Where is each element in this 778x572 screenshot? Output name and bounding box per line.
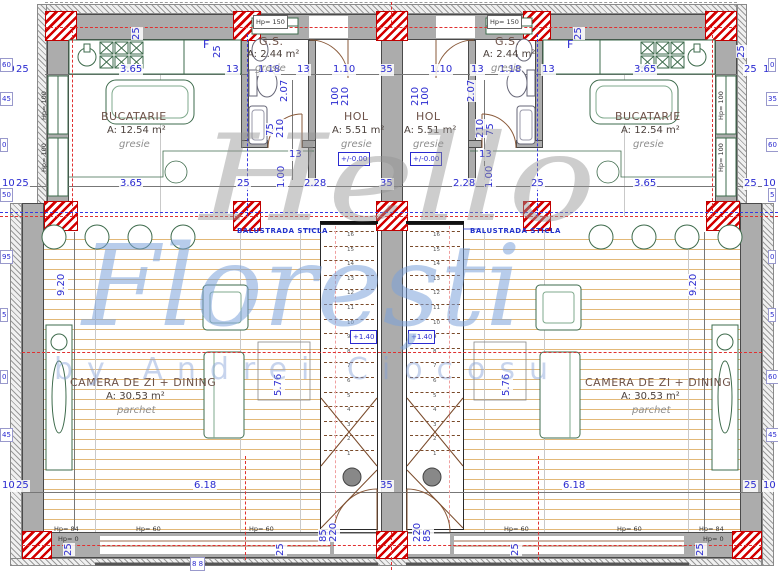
level-badge: +1.40: [350, 330, 377, 344]
dimension-label: 6.18: [193, 480, 217, 492]
axis-red: [22, 352, 762, 353]
level-badge: +1.40: [408, 330, 435, 344]
dimension-label-vertical: 210: [340, 87, 352, 106]
dimension-label-vertical: 25: [212, 45, 224, 58]
dimension-label: 1.10: [332, 64, 356, 76]
dimension-label-vertical: 25: [63, 543, 75, 556]
sill-height-label-vertical: Hp= 100: [715, 91, 727, 120]
sill-height-label: Hp= 0: [58, 533, 79, 545]
edge-dimension-fragment: 95: [0, 250, 13, 264]
dimension-label-vertical: 100: [420, 87, 432, 106]
edge-dimension-fragment: 60: [0, 58, 13, 72]
edge-dimension-fragment: 45: [0, 92, 13, 106]
dimension-label: 25: [15, 178, 30, 190]
room-title: HOL: [344, 111, 369, 123]
edge-dimension-fragment: 8 8: [190, 557, 205, 571]
dimension-label: 3.65: [633, 64, 657, 76]
axis-red: [391, 532, 392, 570]
dimension-label-vertical: 210: [275, 119, 287, 138]
edge-dimension-fragment: 60: [766, 370, 778, 384]
room-floor-finish: gresie: [491, 63, 522, 75]
axis-red: [538, 456, 539, 560]
dimension-label-vertical: 9.20: [688, 274, 700, 296]
dimension-label: 3.65: [633, 178, 657, 190]
dimension-label-vertical: 9.20: [56, 274, 68, 296]
edge-dimension-fragment: 0: [0, 370, 8, 384]
edge-dimension-fragment: 5: [768, 308, 776, 322]
dimension-label-vertical: 85: [422, 529, 434, 542]
dimension-label: 10: [762, 480, 777, 492]
room-floor-finish: gresie: [119, 139, 150, 151]
dimension-label: 25: [743, 480, 758, 492]
dimension-label: 3.65: [119, 64, 143, 76]
room-area: A: 5.51 m²: [404, 125, 456, 137]
dimension-label-vertical: 5.76: [501, 374, 513, 396]
room-floor-finish: parchet: [117, 405, 156, 417]
balustrade-label: BALUSTRADA STICLA: [237, 225, 328, 237]
edge-dimension-fragment: 45: [766, 428, 778, 442]
room-floor-finish: parchet: [632, 405, 671, 417]
dimension-label-vertical: 2.07: [279, 80, 291, 102]
room-title: BUCATARIE: [615, 111, 681, 123]
dimension-label: 25: [743, 178, 758, 190]
edge-dimension-fragment: 5: [0, 308, 8, 322]
dimension-label-vertical: 220: [328, 523, 340, 542]
dimension-label-vertical: 75: [485, 123, 497, 136]
axis-red: [391, 2, 392, 28]
fridge-label: F: [567, 39, 573, 51]
sill-height-label-vertical: Hp= 100: [38, 91, 50, 120]
edge-dimension-fragment: 5: [768, 188, 776, 202]
balustrade-label: BALUSTRADA STICLA: [470, 225, 561, 237]
dimension-label: 25: [236, 178, 251, 190]
room-area: A: 5.51 m²: [332, 125, 384, 137]
dimension-label: 2.28: [452, 178, 476, 190]
dimension-label: 6.18: [562, 480, 586, 492]
room-area: A: 12.54 m²: [621, 125, 680, 137]
dimension-label: 13: [288, 149, 303, 161]
sill-height-label: Hp= 60: [249, 523, 274, 535]
room-area: A: 30.53 m²: [621, 391, 680, 403]
dimension-label-vertical: 1.00: [484, 166, 496, 188]
fridge-label: F: [203, 39, 209, 51]
edge-dimension-fragment: 50: [0, 188, 13, 202]
dimension-label: 13: [296, 64, 311, 76]
dimension-label-vertical: 25: [736, 45, 748, 58]
level-badge: +/-0.00: [410, 152, 442, 166]
dimension-label: 13: [478, 149, 493, 161]
room-title: G.S.: [259, 36, 284, 48]
dimension-label: 1.10: [429, 64, 453, 76]
dimension-label-vertical: 25: [275, 543, 287, 556]
edge-dimension-fragment: 45: [0, 428, 13, 442]
floor-plan: 16151413121110987654321 1615141312111098…: [0, 0, 778, 572]
edge-dimension-fragment: 0: [768, 58, 776, 72]
dimension-label: 13: [225, 64, 240, 76]
room-title: CAMERA DE ZI + DINING: [585, 377, 731, 389]
room-area: A: 12.54 m²: [107, 125, 166, 137]
sill-height-label: Hp= 60: [504, 523, 529, 535]
axis-red: [712, 30, 713, 216]
dimension-label-vertical: 25: [695, 543, 707, 556]
dimension-label: 10: [1, 480, 16, 492]
dimension-label: 25: [743, 64, 758, 76]
room-area: A: 2.44 m²: [483, 49, 535, 61]
dimension-label-vertical: 1.00: [276, 166, 288, 188]
sill-height-label-vertical: Hp= 100: [38, 143, 50, 172]
room-floor-finish: gresie: [341, 139, 372, 151]
dimension-label: 13: [470, 64, 485, 76]
dimension-label: 13: [541, 64, 556, 76]
dimension-label: 25: [15, 64, 30, 76]
axis-red: [0, 216, 778, 217]
room-area: A: 30.53 m²: [106, 391, 165, 403]
room-floor-finish: gresie: [633, 139, 664, 151]
room-title: CAMERA DE ZI + DINING: [70, 377, 216, 389]
sill-height-label-vertical: Hp= 100: [715, 143, 727, 172]
axis-red: [72, 30, 73, 216]
axis-red: [245, 456, 246, 560]
dimension-label-vertical: 5.76: [273, 374, 285, 396]
dimension-label-vertical: 25: [573, 27, 585, 40]
edge-dimension-fragment: 0: [768, 250, 776, 264]
dimension-label-vertical: 25: [510, 543, 522, 556]
level-badge: +/-0.00: [338, 152, 370, 166]
dimension-label: 35: [379, 64, 394, 76]
room-area: A: 2.44 m²: [247, 49, 299, 61]
dimension-label: 3.65: [119, 178, 143, 190]
axis-blue: [0, 212, 778, 213]
sill-height-badge: Hp= 150: [487, 15, 522, 29]
dimension-label-vertical: 25: [131, 27, 143, 40]
dimension-label: 35: [379, 178, 394, 190]
edge-dimension-fragment: 35: [766, 92, 778, 106]
dimension-label: 25: [530, 178, 545, 190]
room-floor-finish: gresie: [413, 139, 444, 151]
sill-height-label: Hp= 60: [617, 523, 642, 535]
dimension-label: 35: [379, 480, 394, 492]
dimension-label: 2.28: [303, 178, 327, 190]
room-floor-finish: gresie: [255, 63, 286, 75]
sill-height-label: Hp= 0: [703, 533, 724, 545]
room-title: BUCATARIE: [101, 111, 167, 123]
sill-height-label: Hp= 60: [136, 523, 161, 535]
sill-height-badge: Hp= 150: [253, 15, 288, 29]
dimension-label-vertical: 2.07: [466, 80, 478, 102]
axis-red: [22, 545, 762, 546]
room-title: G.S.: [495, 36, 520, 48]
edge-dimension-fragment: 60: [766, 138, 778, 152]
room-title: HOL: [416, 111, 441, 123]
edge-dimension-fragment: 0: [0, 138, 8, 152]
dimension-label: 25: [15, 480, 30, 492]
